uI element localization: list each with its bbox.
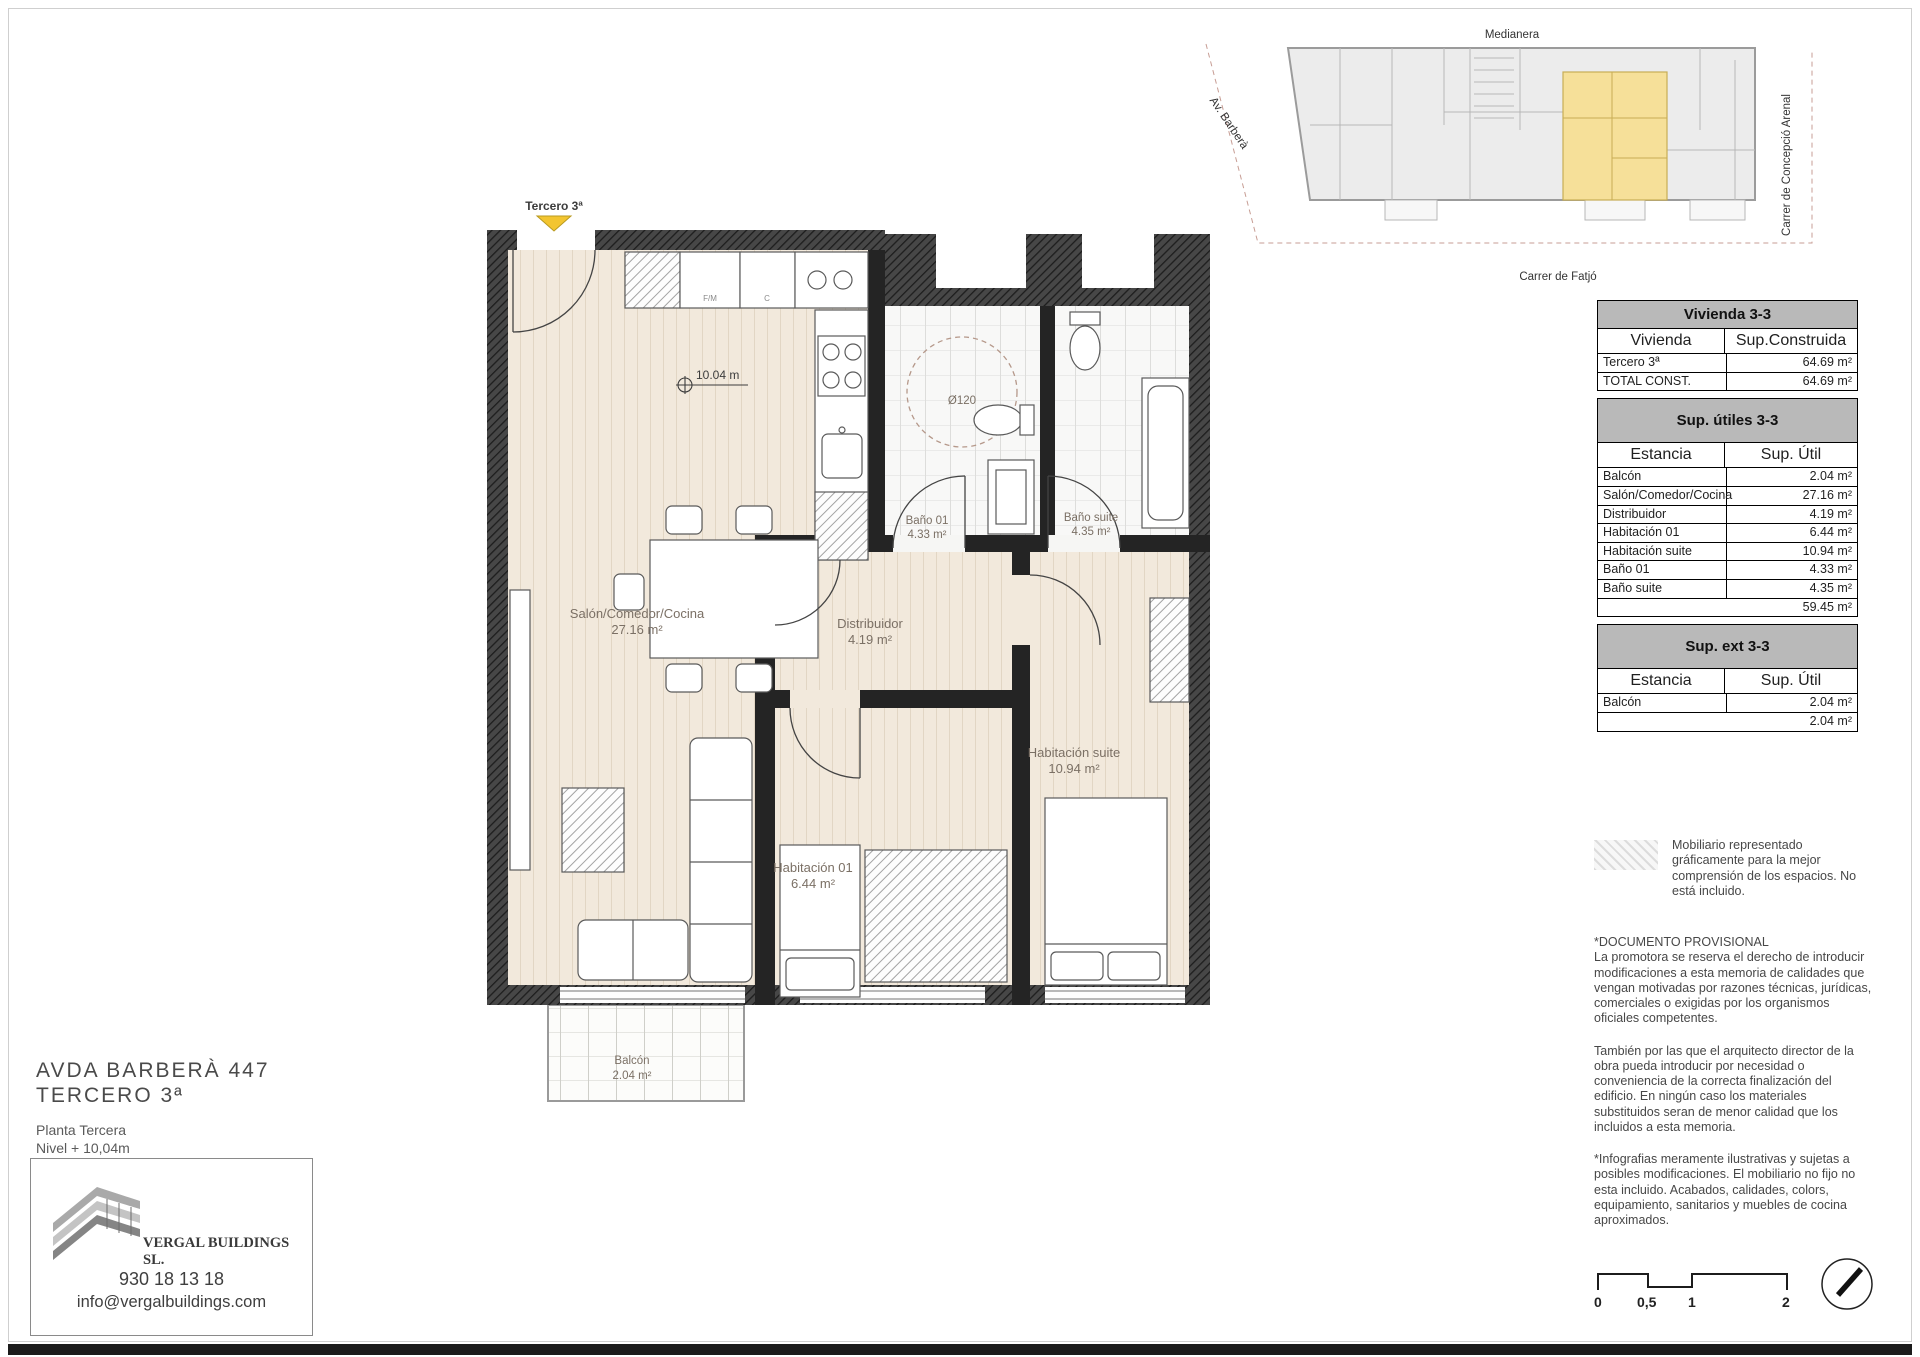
pillow xyxy=(1108,952,1160,980)
facade-pier xyxy=(880,234,936,288)
banio01-label: Baño 01 xyxy=(906,515,949,527)
site-plan-minimap: Medianera Av. Barberà Carrer de Concepci… xyxy=(1190,18,1820,290)
note-tambien: También por las que el arquitecto direct… xyxy=(1594,1044,1872,1136)
hab-suite-area: 10.94 m² xyxy=(1048,761,1100,776)
balcon-floor xyxy=(548,1005,744,1101)
pillow xyxy=(786,958,854,990)
kitchen-tall-cabinet xyxy=(625,252,680,308)
north-compass xyxy=(1822,1259,1872,1309)
scale-label-1: 1 xyxy=(1688,1294,1696,1310)
company-email: info@vergalbuildings.com xyxy=(31,1293,312,1312)
toilet-tank xyxy=(1070,312,1100,325)
hab01-label: Habitación 01 xyxy=(773,860,853,875)
turning-circle-label: Ø120 xyxy=(948,395,976,407)
company-box: VERGAL BUILDINGS SL. 930 18 13 18 info@v… xyxy=(30,1158,313,1336)
toilet xyxy=(1070,326,1100,370)
washbasin xyxy=(988,460,1034,534)
tv-unit xyxy=(510,590,530,870)
ext-total: 2.04 m² xyxy=(1598,713,1857,731)
title-block: AVDA BARBERÀ 447 TERCERO 3ª Planta Terce… xyxy=(36,1058,316,1157)
wardrobe xyxy=(1150,598,1189,702)
kitchen-low-cabinet xyxy=(815,492,868,560)
table-total-row: 59.45 m² xyxy=(1598,598,1857,617)
sheet-bottom-bar xyxy=(8,1344,1912,1355)
project-address: AVDA BARBERÀ 447 xyxy=(36,1058,316,1083)
note-infografias: *Infografias meramente ilustrativas y su… xyxy=(1594,1152,1872,1228)
col-header-sup-construida: Sup.Construida xyxy=(1725,329,1857,353)
table-row: Distribuidor 4.19 m² xyxy=(1598,505,1857,524)
scale-label-2: 2 xyxy=(1782,1294,1790,1310)
balcon-label: Balcón xyxy=(614,1055,649,1067)
table-row: Balcón 2.04 m² xyxy=(1598,467,1857,486)
floor-plan: Tercero 3ª 10.04 m Ø120 F/M C Salón/Come… xyxy=(460,195,1235,1110)
toilet xyxy=(974,405,1022,435)
project-unit: TERCERO 3ª xyxy=(36,1083,316,1108)
street-label-barbera: Av. Barberà xyxy=(1207,95,1251,152)
col-header-sup-util: Sup. Útil xyxy=(1725,443,1857,467)
table-row: Habitación 01 6.44 m² xyxy=(1598,523,1857,542)
furniture-legend: Mobiliario representado gráficamente par… xyxy=(1594,838,1872,899)
salon-area: 27.16 m² xyxy=(611,622,663,637)
table-vivienda: Vivienda Sup.Construida Tercero 3ª 64.69… xyxy=(1597,329,1858,391)
salon-label: Salón/Comedor/Cocina xyxy=(570,606,705,621)
kitchen-counter-top xyxy=(795,252,868,308)
balcon-area: 2.04 m² xyxy=(613,1070,652,1082)
table-row: Baño 01 4.33 m² xyxy=(1598,560,1857,579)
suite-window xyxy=(1045,987,1185,1003)
highlighted-unit xyxy=(1563,72,1667,200)
table-title-vivienda: Vivienda 3-3 xyxy=(1597,300,1858,329)
coffee-table xyxy=(562,788,624,872)
table-title-ext: Sup. ext 3-3 xyxy=(1597,624,1858,669)
bathtub xyxy=(1142,378,1189,528)
legend-text: Mobiliario representado gráficamente par… xyxy=(1672,838,1864,899)
notes-block: Mobiliario representado gráficamente par… xyxy=(1594,838,1872,1228)
scale-label-05: 0,5 xyxy=(1637,1294,1656,1310)
pillow xyxy=(1051,952,1103,980)
banio01-area: 4.33 m² xyxy=(908,529,947,541)
utiles-total: 59.45 m² xyxy=(1598,599,1857,617)
distribuidor-label: Distribuidor xyxy=(837,616,903,631)
table-title-utiles: Sup. útiles 3-3 xyxy=(1597,398,1858,443)
building-outline xyxy=(1288,48,1755,200)
column-label: C xyxy=(764,294,770,303)
floor-marker-label: Tercero 3ª xyxy=(525,199,583,213)
banio-suite-label: Baño suite xyxy=(1064,512,1118,524)
hab01-area: 6.44 m² xyxy=(791,876,836,891)
dining-table xyxy=(650,540,818,658)
windows xyxy=(560,987,1185,1003)
table-row: Tercero 3ª 64.69 m² xyxy=(1598,353,1857,372)
hatch-legend-swatch xyxy=(1594,840,1658,870)
street-label-medianera: Medianera xyxy=(1485,29,1540,41)
distribuidor-area: 4.19 m² xyxy=(848,632,893,647)
street-label-arenal: Carrer de Concepció Arenal xyxy=(1781,94,1793,236)
scale-label-0: 0 xyxy=(1594,1294,1602,1310)
level-mark-label: 10.04 m xyxy=(696,368,739,382)
table-ext: Estancia Sup. Útil Balcón 2.04 m² 2.04 m… xyxy=(1597,669,1858,731)
surface-tables: Vivienda 3-3 Vivienda Sup.Construida Ter… xyxy=(1597,300,1858,732)
table-row: Baño suite 4.35 m² xyxy=(1598,579,1857,598)
table-utiles: Estancia Sup. Útil Balcón 2.04 m² Salón/… xyxy=(1597,443,1858,617)
floor-marker-arrow xyxy=(537,216,571,231)
street-label-fatjo: Carrer de Fatjó xyxy=(1519,271,1596,283)
company-logo xyxy=(45,1173,145,1263)
col-header-estancia-ext: Estancia xyxy=(1598,669,1725,693)
balcony-door-window xyxy=(560,987,745,1003)
table-row: Salón/Comedor/Cocina 27.16 m² xyxy=(1598,486,1857,505)
wardrobe xyxy=(865,850,1007,982)
hab-suite-label: Habitación suite xyxy=(1028,745,1121,760)
fridge-label: F/M xyxy=(703,294,717,303)
banio-suite-area: 4.35 m² xyxy=(1072,526,1111,538)
col-header-sup-util-ext: Sup. Útil xyxy=(1725,669,1857,693)
toilet-tank xyxy=(1020,405,1034,435)
table-row: Balcón 2.04 m² xyxy=(1598,693,1857,712)
col-header-vivienda: Vivienda xyxy=(1598,329,1725,353)
company-name: VERGAL BUILDINGS SL. xyxy=(143,1235,312,1269)
floor-name: Planta Tercera xyxy=(36,1121,316,1139)
table-row: Habitación suite 10.94 m² xyxy=(1598,542,1857,561)
col-header-estancia: Estancia xyxy=(1598,443,1725,467)
scale-bar xyxy=(1598,1274,1787,1290)
company-phone: 930 18 13 18 xyxy=(31,1269,312,1290)
scale-and-compass xyxy=(1590,1250,1890,1325)
table-row: TOTAL CONST. 64.69 m² xyxy=(1598,372,1857,391)
floor-level: Nivel + 10,04m xyxy=(36,1139,316,1157)
facade-pier xyxy=(1026,234,1082,288)
note-provisional: *DOCUMENTO PROVISIONAL La promotora se r… xyxy=(1594,935,1872,1027)
table-total-row: 2.04 m² xyxy=(1598,712,1857,731)
